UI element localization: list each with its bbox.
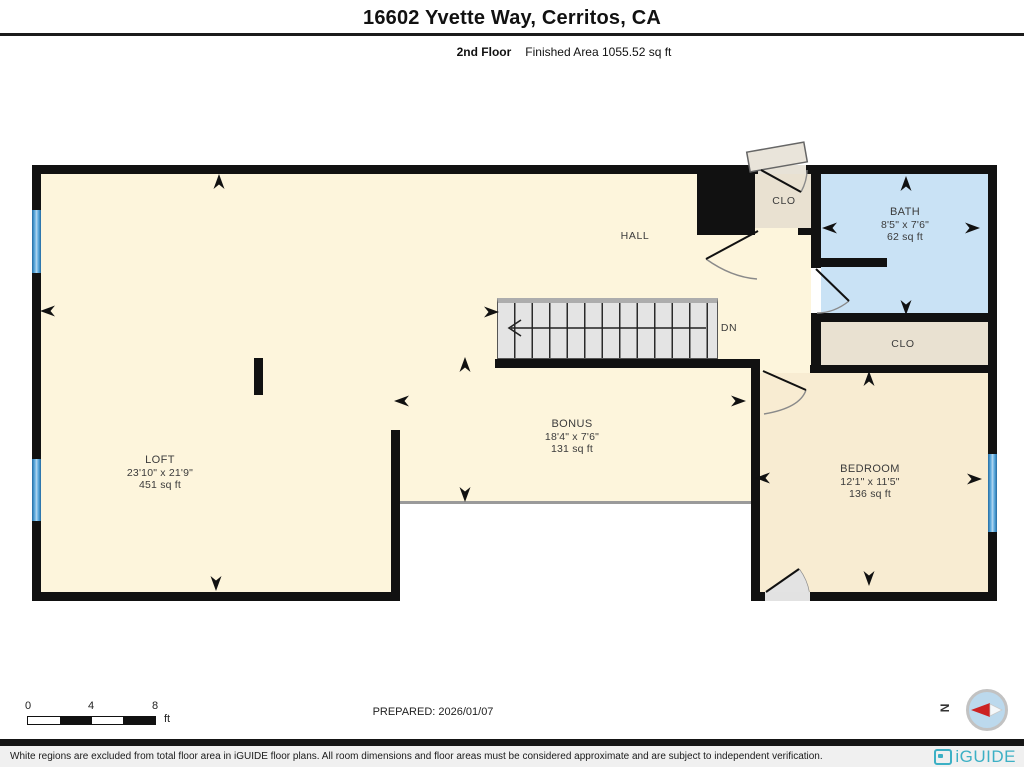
scale-unit: ft <box>164 713 170 725</box>
floor-plan-page: 16602 Yvette Way, Cerritos, CA 2nd Floor… <box>0 0 1024 767</box>
scale-tick-0: 0 <box>25 700 31 712</box>
footer-disclaimer: White regions are excluded from total fl… <box>10 751 823 762</box>
closet-top-open-door <box>747 142 808 172</box>
iguide-logo-icon <box>934 749 952 765</box>
compass-north-label: N <box>937 704 951 713</box>
door-arcs <box>706 170 849 592</box>
iguide-logo-text: iGUIDE <box>955 747 1016 767</box>
stairs-down-arrow <box>509 320 706 336</box>
footer-divider-bar <box>0 739 1024 746</box>
scale-bar: 0 4 8 ft <box>24 700 204 730</box>
iguide-brand: iGUIDE <box>934 747 1016 767</box>
prepared-date: PREPARED: 2026/01/07 <box>373 706 494 718</box>
closet-bath-label: CLO <box>843 338 963 350</box>
bedroom-label: BEDROOM 12'1" x 11'5" 136 sq ft <box>770 463 970 501</box>
scale-tick-8: 8 <box>152 700 158 712</box>
footer: White regions are excluded from total fl… <box>0 746 1024 767</box>
plan-annotations <box>0 0 1024 767</box>
stairs-dn-label: DN <box>713 322 745 334</box>
bath-label: BATH 8'5" x 7'6" 62 sq ft <box>835 206 975 244</box>
hall-label: HALL <box>595 230 675 242</box>
door-leaves <box>706 170 849 592</box>
scale-bar-segments <box>27 716 156 725</box>
scale-tick-4: 4 <box>88 700 94 712</box>
closet-top-label: CLO <box>754 195 814 207</box>
loft-label: LOFT 23'10" x 21'9" 451 sq ft <box>60 454 260 492</box>
compass-icon <box>966 689 1008 731</box>
bonus-label: BONUS 18'4" x 7'6" 131 sq ft <box>472 418 672 456</box>
